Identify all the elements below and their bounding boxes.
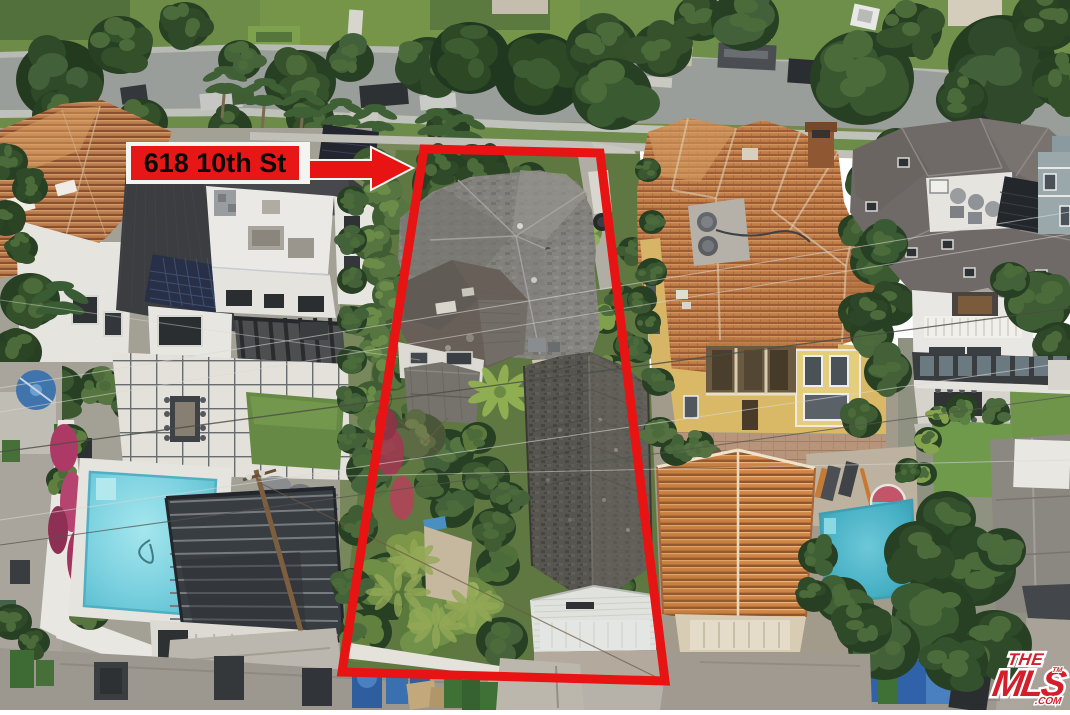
svg-text:618 10th St: 618 10th St	[144, 148, 287, 178]
svg-text:TM: TM	[1052, 667, 1063, 674]
svg-text:.COM: .COM	[1034, 696, 1062, 707]
